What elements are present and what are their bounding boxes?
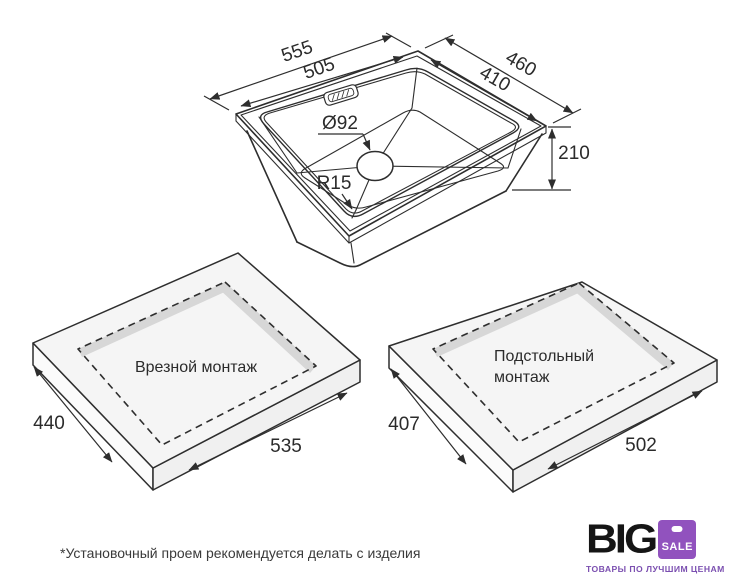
price-tag-icon [672,526,683,532]
dim-r15: R15 [317,173,352,194]
sale-badge: SALE [658,520,696,559]
dim-210: 210 [558,143,590,164]
undermount-label-line1: Подстольный [494,348,594,365]
big-sale-logo: BIG SALE ТОВАРЫ ПО ЛУЧШИМ ЦЕНАМ [586,520,716,574]
dim-502: 502 [625,435,657,456]
logo-brand-text: BIG [586,520,655,559]
product-dimensions-image: 555 505 460 410 210 Ø92 [0,0,744,584]
sale-badge-text: SALE [658,541,696,553]
dim-407: 407 [388,414,420,435]
inset-mount-diagram: Врезной монтаж 440 535 [33,253,360,490]
logo-row: BIG SALE [586,520,716,562]
dim-440: 440 [33,413,65,434]
sink-body-front-corner [351,243,354,263]
dim-535: 535 [270,436,302,457]
dim-o92: Ø92 [322,113,358,134]
undermount-label-line2: монтаж [494,369,550,386]
sink-isometric-drawing: 555 505 460 410 210 Ø92 [204,33,590,267]
footnote-text: *Установочный проем рекомендуется делать… [60,545,420,561]
undermount-diagram: Подстольный монтаж 407 502 [388,282,717,492]
slab-top [389,282,717,470]
inset-mount-label: Врезной монтаж [135,359,257,376]
logo-tagline: ТОВАРЫ ПО ЛУЧШИМ ЦЕНАМ [586,564,716,574]
drain-hole [357,152,393,181]
technical-drawing: 555 505 460 410 210 Ø92 [0,0,744,584]
